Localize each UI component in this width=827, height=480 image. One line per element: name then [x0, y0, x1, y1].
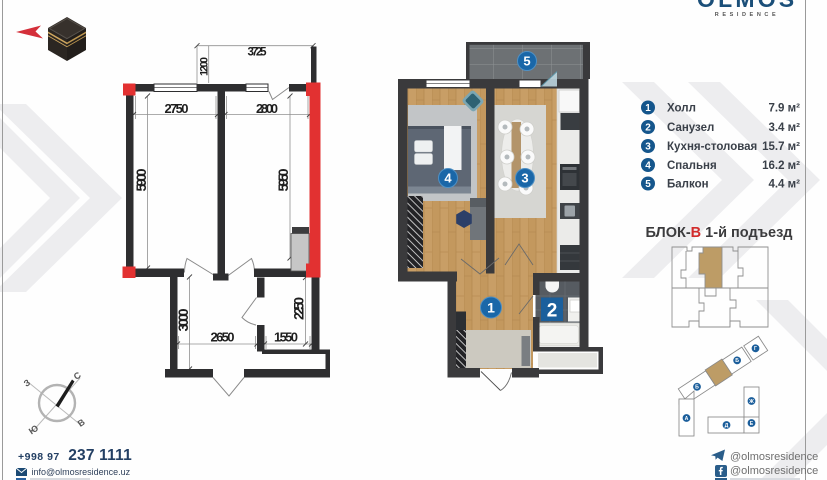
svg-text:2: 2	[547, 301, 558, 322]
svg-text:3: 3	[521, 171, 528, 186]
svg-text:5: 5	[523, 54, 530, 69]
svg-text:1: 1	[487, 300, 495, 316]
svg-text:4: 4	[444, 171, 452, 186]
